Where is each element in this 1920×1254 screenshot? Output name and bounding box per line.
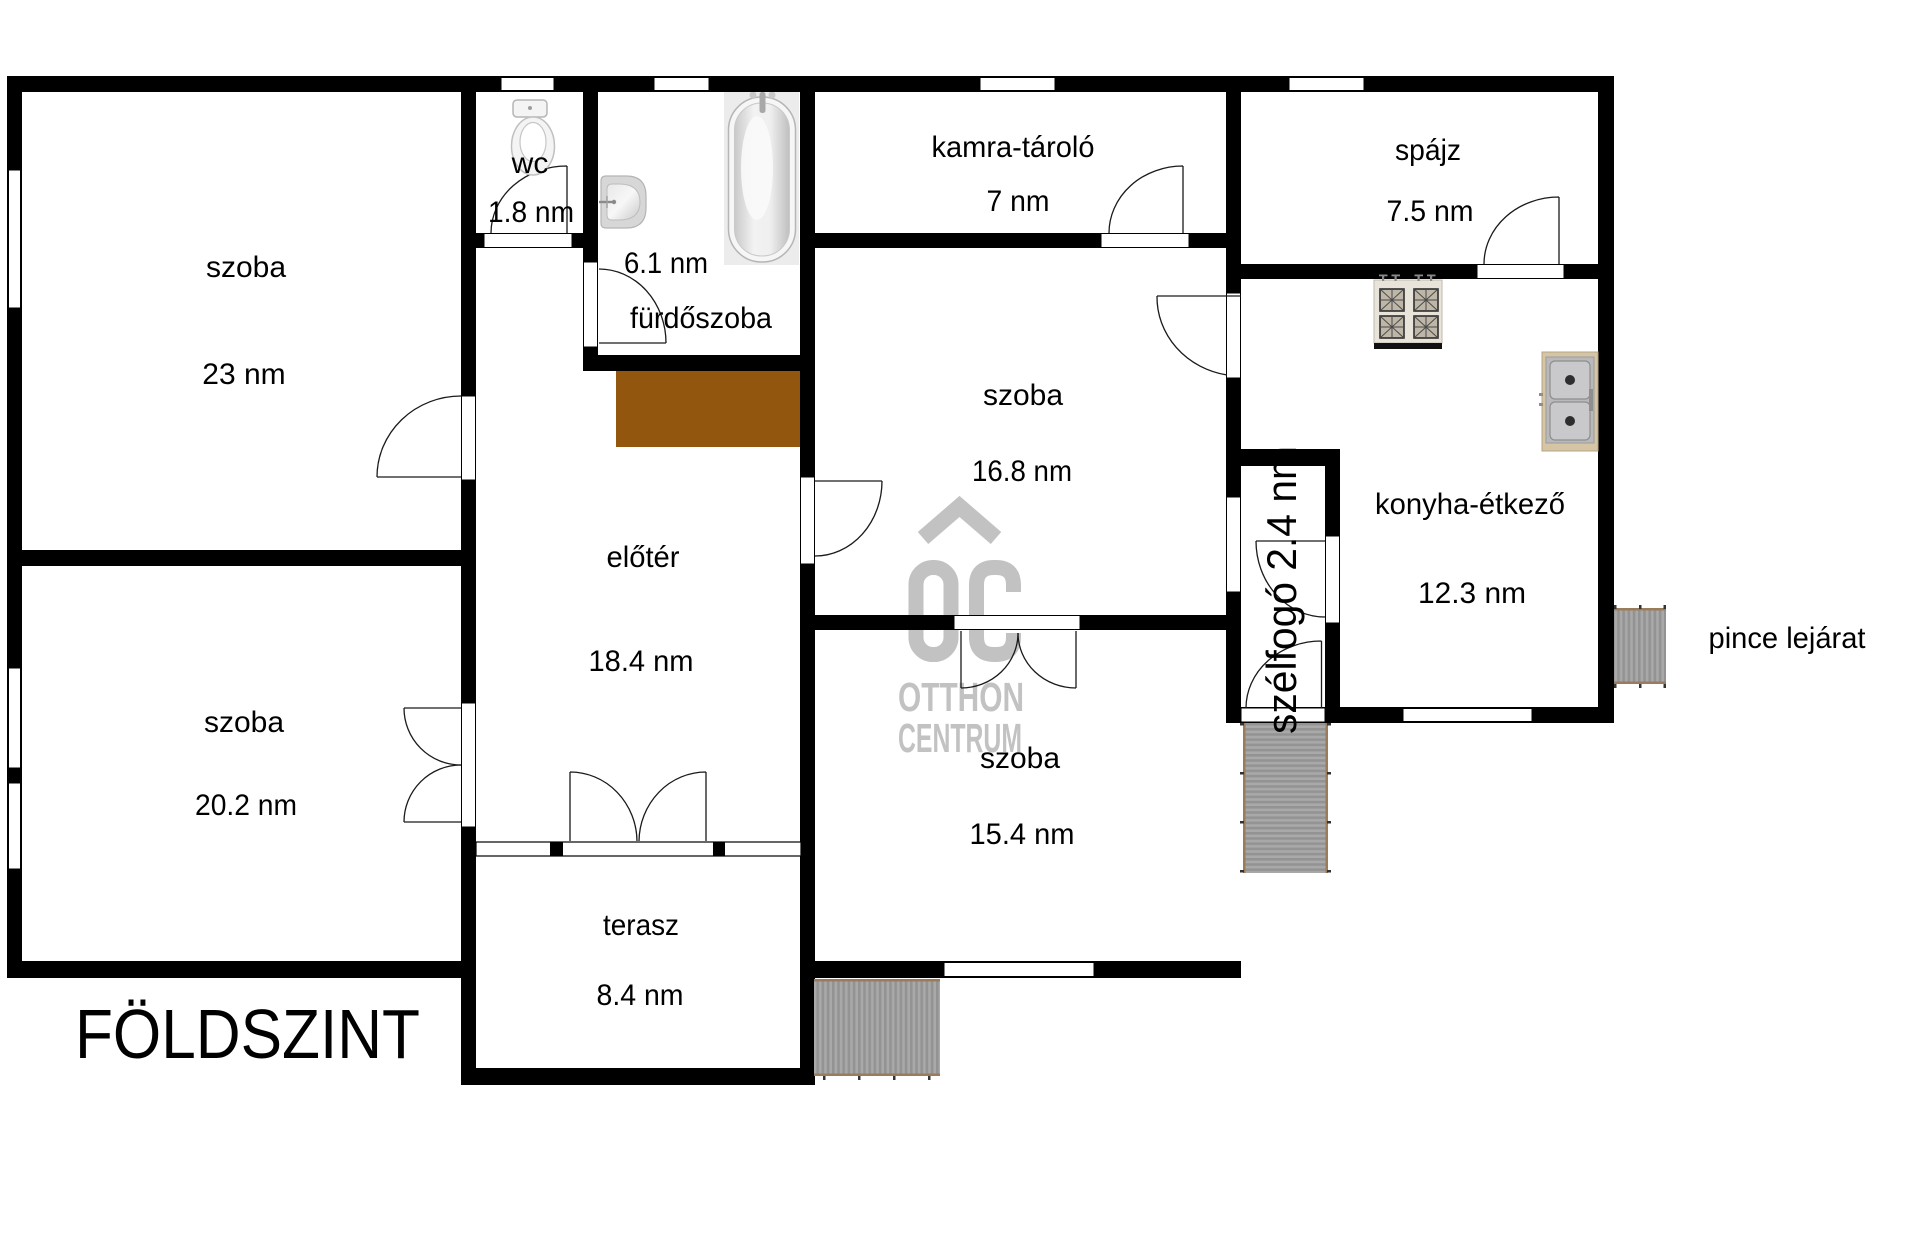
svg-text:wc: wc [511,147,549,180]
svg-text:12.3 nm: 12.3 nm [1418,577,1526,610]
svg-text:16.8 nm: 16.8 nm [972,455,1072,488]
svg-text:spájz: spájz [1395,134,1461,167]
svg-text:szoba: szoba [983,379,1063,412]
svg-text:8.4 nm: 8.4 nm [597,979,684,1012]
svg-text:23 nm: 23 nm [202,358,285,391]
svg-text:1.8 nm: 1.8 nm [488,196,574,229]
svg-text:pince lejárat: pince lejárat [1709,622,1867,655]
svg-text:18.4 nm: 18.4 nm [589,645,694,678]
svg-text:7.5 nm: 7.5 nm [1387,195,1474,228]
svg-text:szélfogó 2.4 nm: szélfogó 2.4 nm [1258,446,1305,734]
svg-text:fürdőszoba: fürdőszoba [630,302,772,335]
svg-text:szoba: szoba [980,742,1060,775]
svg-text:7 nm: 7 nm [987,185,1050,218]
svg-text:kamra-tároló: kamra-tároló [932,131,1095,164]
svg-text:terasz: terasz [603,909,679,942]
svg-text:6.1 nm: 6.1 nm [624,247,708,280]
svg-text:20.2 nm: 20.2 nm [195,789,297,822]
svg-text:FÖLDSZINT: FÖLDSZINT [75,995,420,1073]
svg-text:15.4 nm: 15.4 nm [970,818,1075,851]
svg-text:konyha-étkező: konyha-étkező [1375,488,1565,521]
svg-text:szoba: szoba [204,706,284,739]
svg-text:szoba: szoba [206,251,286,284]
svg-text:előtér: előtér [607,541,680,574]
